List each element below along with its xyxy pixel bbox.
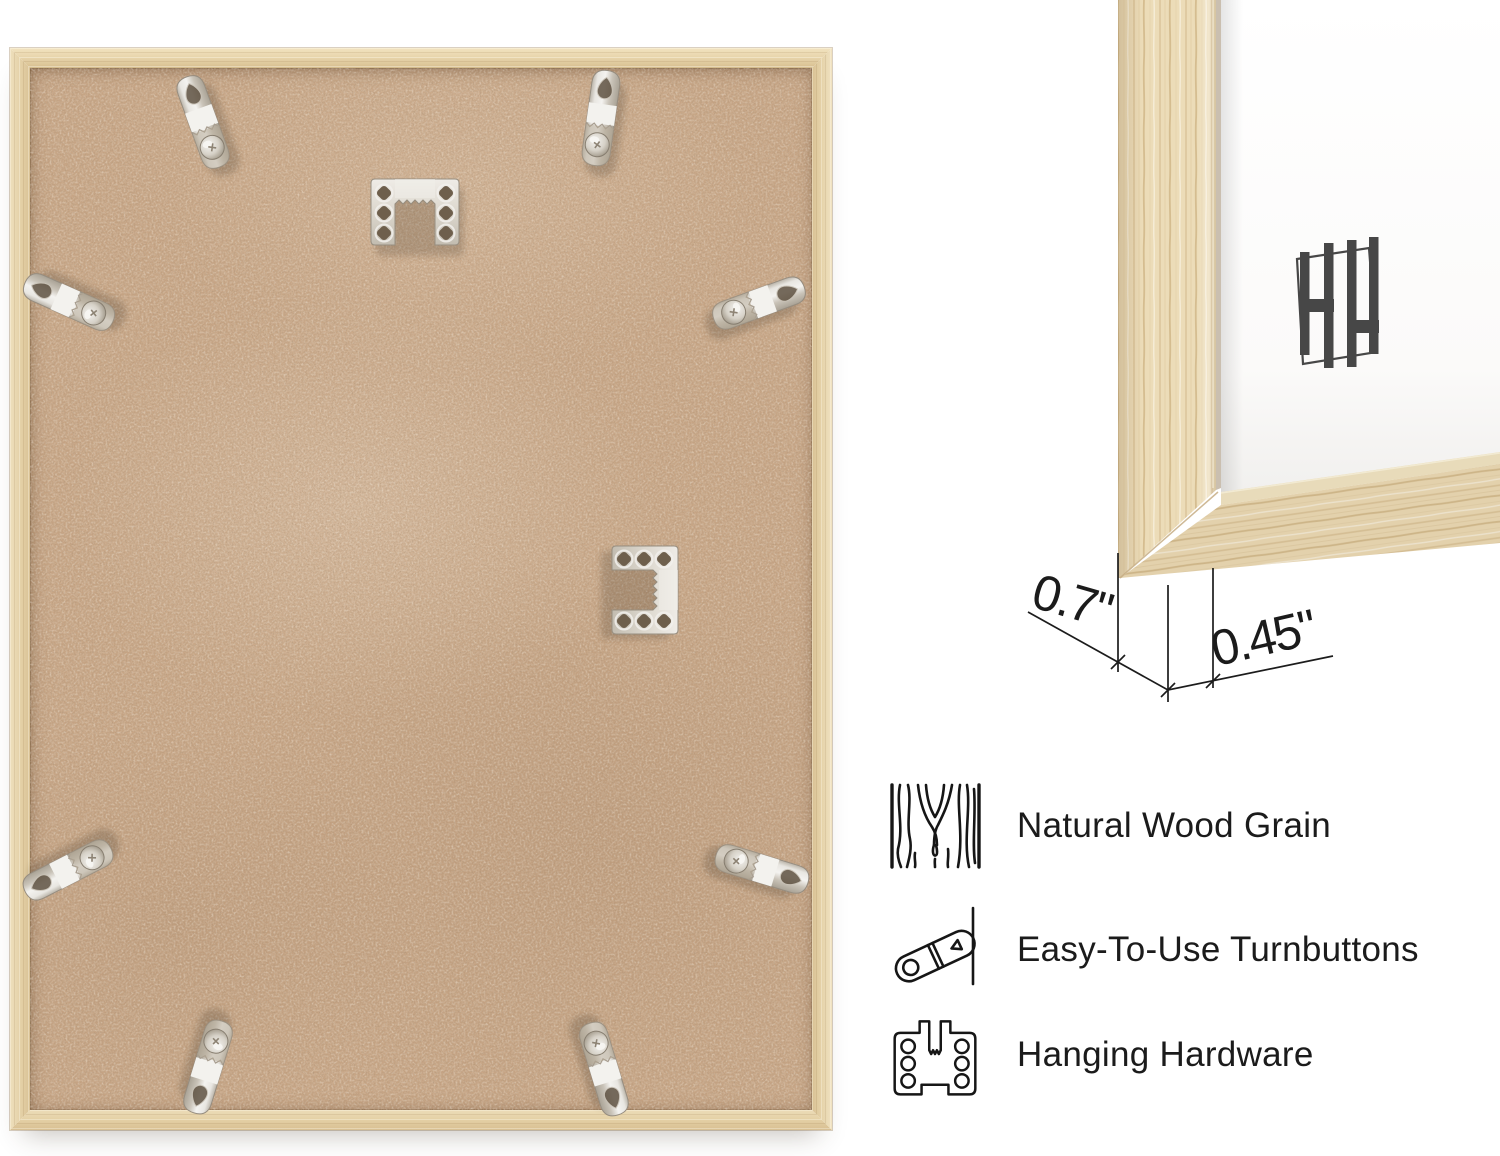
turnbutton-hardware — [579, 69, 629, 179]
feature-label-hanging-hardware: Hanging Hardware — [1017, 1035, 1314, 1075]
feature-row-turnbuttons: Easy-To-Use Turnbuttons — [885, 902, 1419, 998]
frame-back-view — [10, 48, 832, 1130]
wood-grain-icon — [885, 783, 985, 869]
feature-label-turnbuttons: Easy-To-Use Turnbuttons — [1017, 930, 1419, 970]
hanging-hardware-icon — [885, 1013, 985, 1097]
feature-row-wood-grain: Natural Wood Grain — [885, 778, 1331, 874]
sawtooth-hanger-hardware — [601, 546, 678, 639]
sawtooth-hanger-hardware — [371, 179, 464, 256]
product-image: 0.7" 0.45" Natural Wood Grain — [0, 0, 1500, 1156]
frame-corner-view: 0.7" 0.45" — [1000, 0, 1500, 770]
turnbutton-hardware — [19, 262, 130, 338]
turnbutton-icon — [885, 904, 985, 996]
dimension-label-face: 0.45" — [1206, 599, 1321, 677]
dimension-label-depth: 0.7" — [1026, 563, 1118, 639]
mat-board — [1221, 0, 1500, 492]
feature-label-wood-grain: Natural Wood Grain — [1017, 806, 1331, 846]
turnbutton-hardware — [700, 273, 812, 343]
turnbutton-hardware — [173, 69, 243, 181]
hardware-layer — [10, 48, 832, 1130]
turnbutton-hardware — [566, 1009, 631, 1121]
turnbutton-hardware — [700, 839, 812, 904]
feature-row-hanging-hardware: Hanging Hardware — [885, 1007, 1314, 1103]
frame-corner-vertical-bar — [1118, 0, 1221, 578]
turnbutton-hardware — [15, 824, 126, 904]
turnbutton-hardware — [173, 1005, 238, 1117]
